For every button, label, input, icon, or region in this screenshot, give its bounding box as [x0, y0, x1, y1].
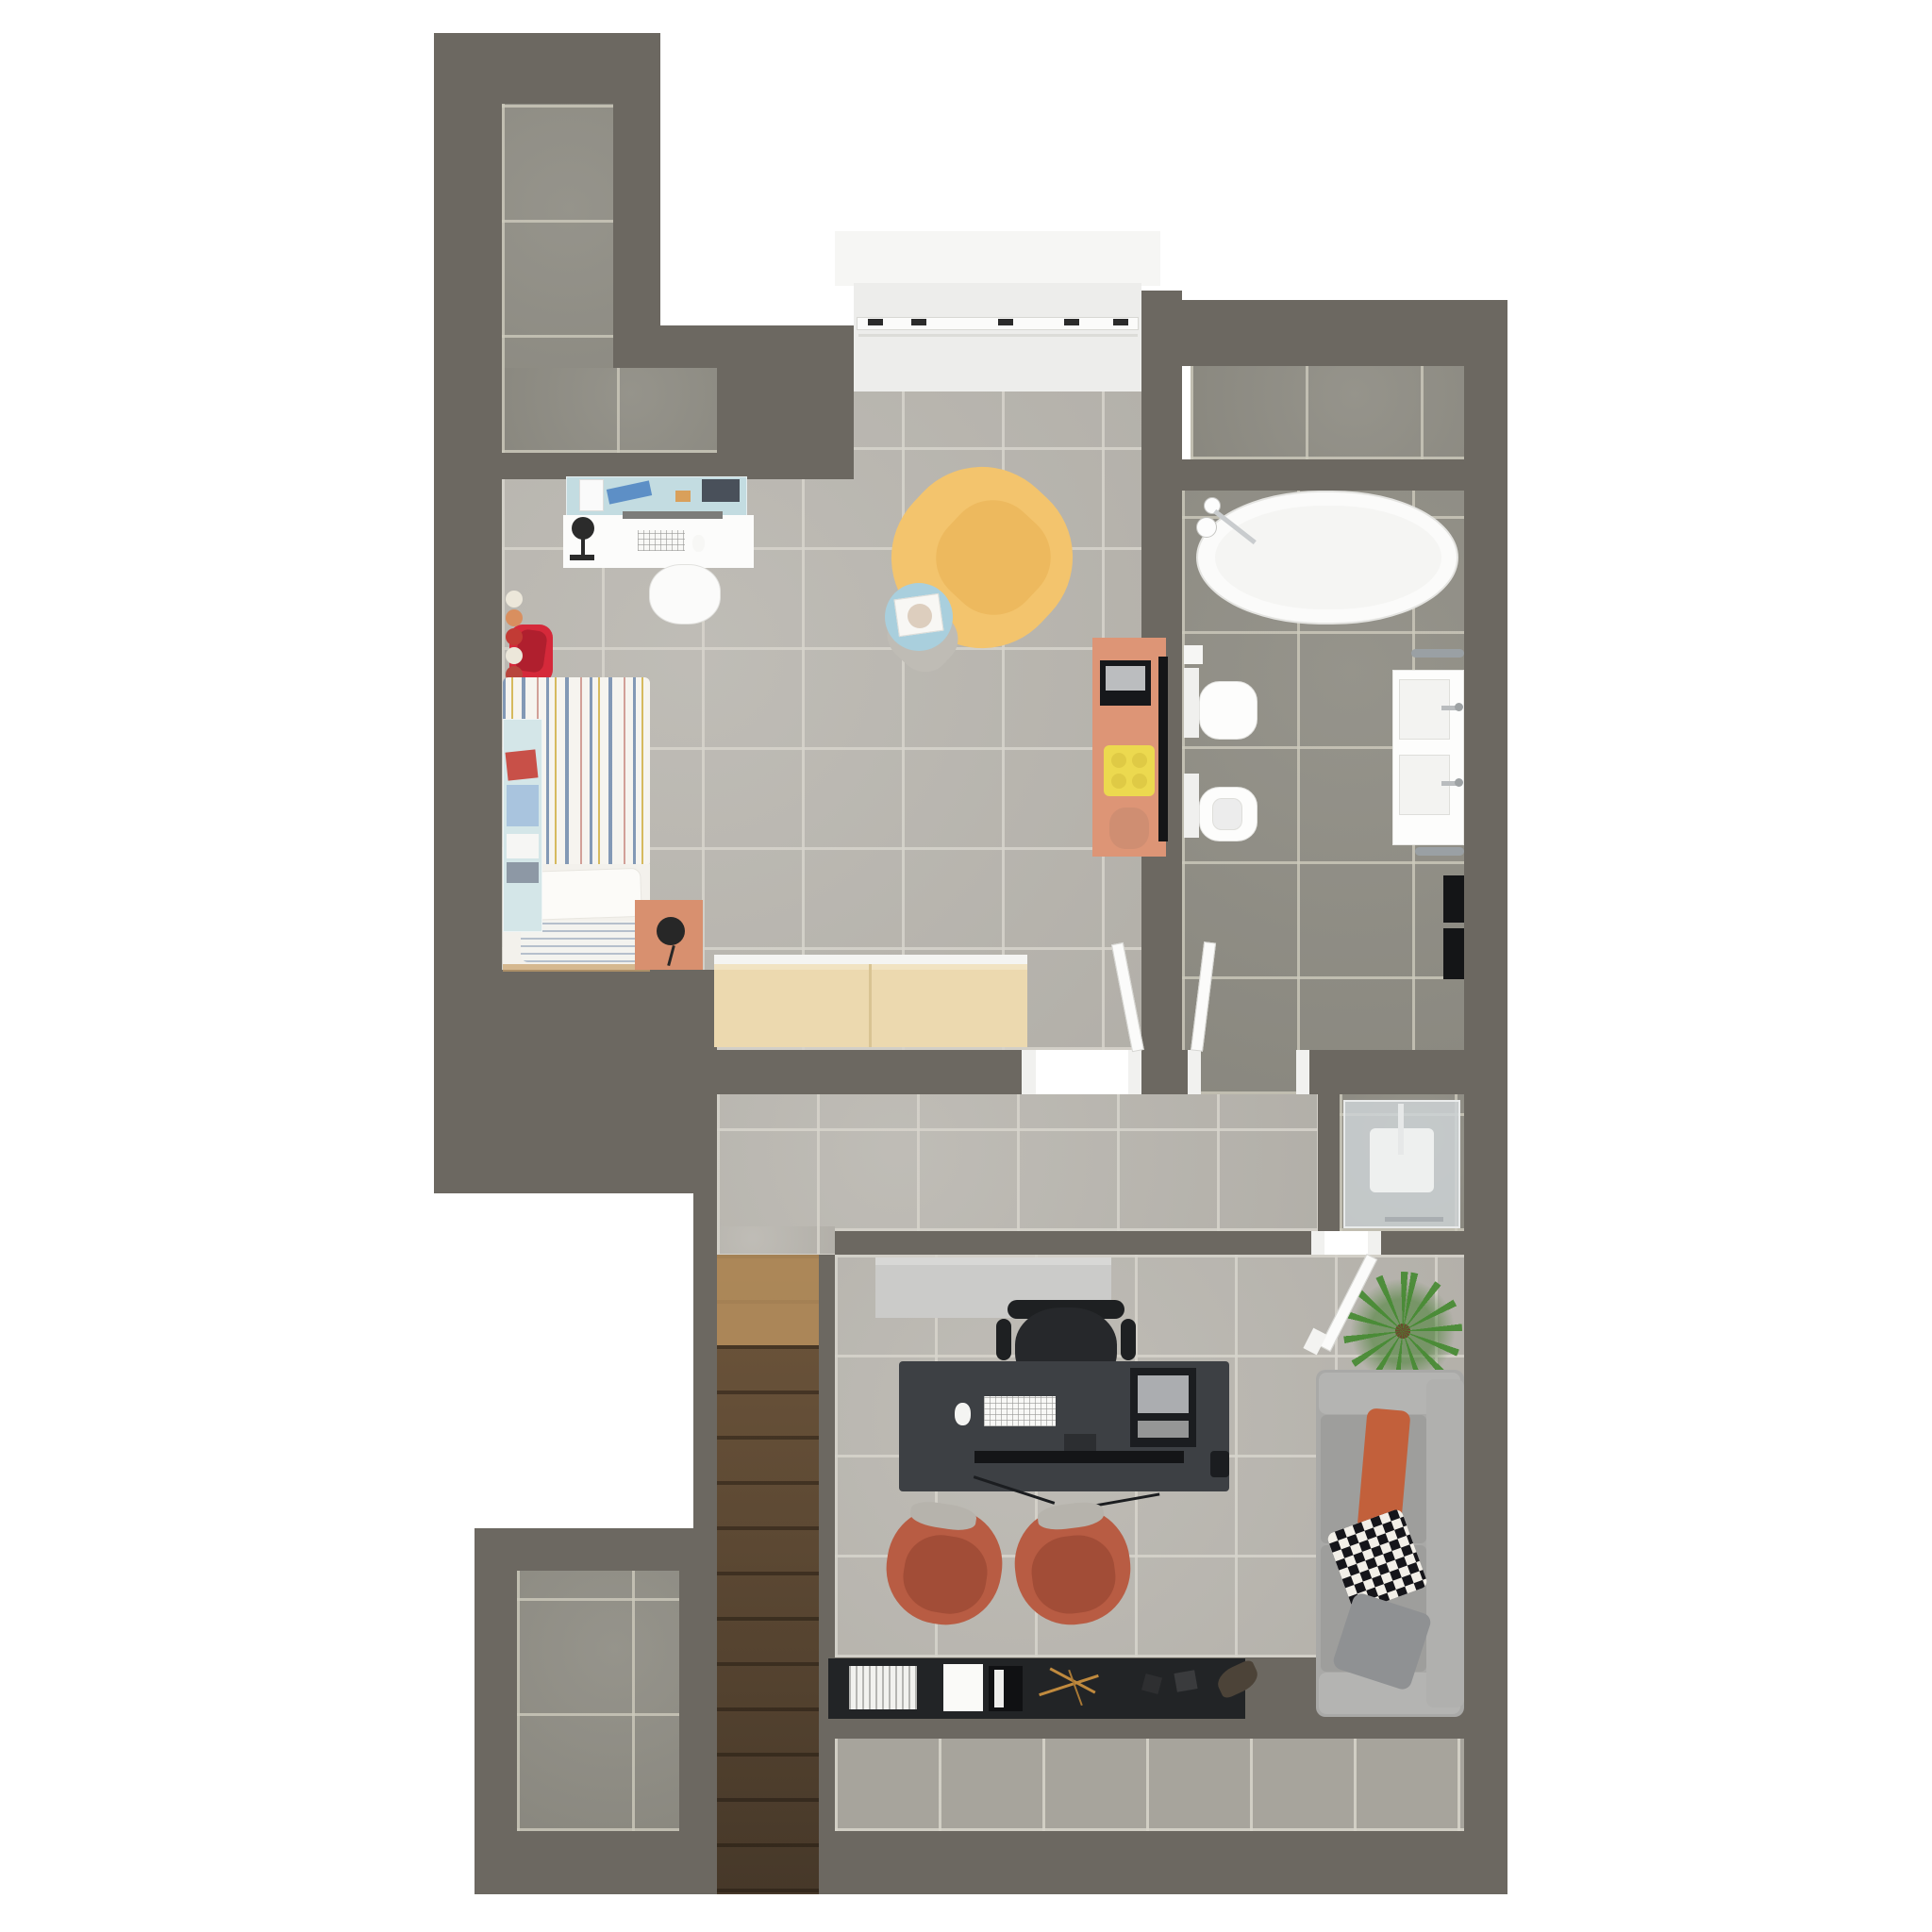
window-hardware	[998, 319, 1013, 325]
wall-shelf-black	[1443, 875, 1464, 923]
floor-plan-canvas	[0, 0, 1932, 1932]
wall-hall-top-left	[717, 1050, 1028, 1094]
lego-stool	[1104, 745, 1155, 796]
vanity-faucet-knob	[1455, 778, 1463, 787]
wall-south-outer	[835, 1831, 1507, 1894]
window-hardware	[911, 319, 926, 325]
sofa-backrest	[1426, 1379, 1464, 1707]
console-sketch	[1109, 808, 1149, 849]
wall-northeast-band	[1141, 300, 1507, 366]
lego-stud	[1111, 774, 1126, 789]
door-jamb	[1368, 1231, 1381, 1255]
hutch-books-white	[579, 479, 604, 511]
wall-bedroom-bottom-chunk	[434, 970, 717, 1193]
door-jamb	[1128, 1050, 1141, 1094]
desk-magazine-art	[1138, 1375, 1189, 1413]
desk-lamp-stem	[581, 525, 585, 557]
toilet-tank	[1184, 668, 1199, 738]
wall-bedroom-top	[434, 453, 854, 479]
dresser-back-edge	[714, 955, 1027, 964]
bedroom-desk-chair	[649, 564, 721, 625]
wall-east-outer	[1464, 300, 1507, 1894]
office-chair-arm	[996, 1319, 1011, 1360]
window-hardware	[1064, 319, 1079, 325]
console-holder-pages	[994, 1670, 1004, 1707]
bed-frame-foot	[503, 964, 650, 972]
window-hardware	[868, 319, 883, 325]
console-magazine-art	[1106, 666, 1145, 691]
lego-stud	[1132, 753, 1147, 768]
desk-magazine-text	[1138, 1421, 1189, 1438]
shower-column	[1398, 1104, 1404, 1155]
desk-mouse	[692, 535, 705, 552]
desk-phone	[1210, 1451, 1229, 1477]
wall-office-top-right	[1379, 1231, 1507, 1255]
lego-stud	[1111, 753, 1126, 768]
wall-shelf-black	[1443, 928, 1464, 979]
desk-monitor	[623, 511, 723, 519]
hutch-box-dark	[702, 479, 740, 502]
balcony-south-strip-tiles	[835, 1739, 1464, 1831]
towel-rail	[1411, 649, 1464, 658]
console-decor	[1174, 1670, 1197, 1692]
wall-door-stub	[1141, 1050, 1193, 1094]
ball	[506, 628, 523, 645]
door-jamb	[1296, 1050, 1309, 1094]
hutch-toy	[675, 491, 691, 502]
console-white-box	[943, 1664, 983, 1711]
side-table-glasses	[908, 604, 932, 628]
staircase-upper-steps	[717, 1255, 819, 1345]
balcony-northwest-tiles-arm	[502, 368, 717, 453]
bidet-inner	[1212, 798, 1242, 830]
window-sill	[854, 283, 1141, 391]
door-jamb	[1022, 1050, 1036, 1094]
towel-rail	[1415, 847, 1464, 856]
bathtub-inner	[1215, 506, 1441, 609]
sideboard-edge	[875, 1257, 1111, 1265]
office-mouse	[955, 1403, 971, 1425]
wall-shower-nook-left	[1318, 1094, 1340, 1231]
toilet-bowl	[1199, 681, 1257, 740]
door-jamb	[1188, 1050, 1201, 1094]
staircase-wood	[717, 1255, 819, 1894]
ball	[506, 647, 523, 664]
balcony-northeast-tiles	[1191, 366, 1464, 459]
wall-wing-right	[613, 104, 660, 325]
ball	[506, 591, 523, 608]
wall-office-left	[819, 1255, 835, 1894]
shelf-item-red	[506, 749, 539, 780]
monitor-stand	[1064, 1434, 1096, 1451]
lego-stud	[1132, 774, 1147, 789]
console-book-stack	[849, 1666, 917, 1709]
desk-keyboard	[638, 530, 685, 551]
wall-office-top	[835, 1231, 1318, 1255]
shelf-item-gray	[507, 862, 539, 883]
window-hardware	[1113, 319, 1128, 325]
toilet-paper	[1184, 645, 1203, 664]
wall-west-outer	[434, 33, 502, 970]
shower-drain	[1385, 1217, 1443, 1222]
vanity-faucet-knob	[1455, 703, 1463, 711]
door-jamb	[1311, 1231, 1324, 1255]
desk-lamp-base	[570, 555, 594, 560]
wall-hall-top-right	[1302, 1050, 1464, 1094]
balcony-southwest-tiles	[517, 1571, 679, 1831]
window-exterior-halo	[835, 231, 1160, 286]
floor-hallway-stair-landing	[717, 1226, 835, 1257]
console-tv	[1158, 657, 1168, 841]
office-chair-arm	[1121, 1319, 1136, 1360]
window-rail	[858, 334, 1138, 337]
tub-faucet-handle	[1196, 517, 1217, 538]
office-monitor	[974, 1451, 1184, 1463]
shelf-item-blue	[507, 785, 539, 826]
shelf-item-white	[507, 834, 539, 858]
dresser-divider	[869, 964, 872, 1047]
ball	[506, 609, 523, 626]
wall-connector-top	[613, 325, 854, 368]
wall-bath-top	[1182, 459, 1507, 491]
nightstand-lamp	[657, 917, 685, 945]
office-keyboard	[984, 1396, 1056, 1426]
floor-hallway	[717, 1094, 1318, 1231]
bidet-tank	[1184, 774, 1199, 838]
